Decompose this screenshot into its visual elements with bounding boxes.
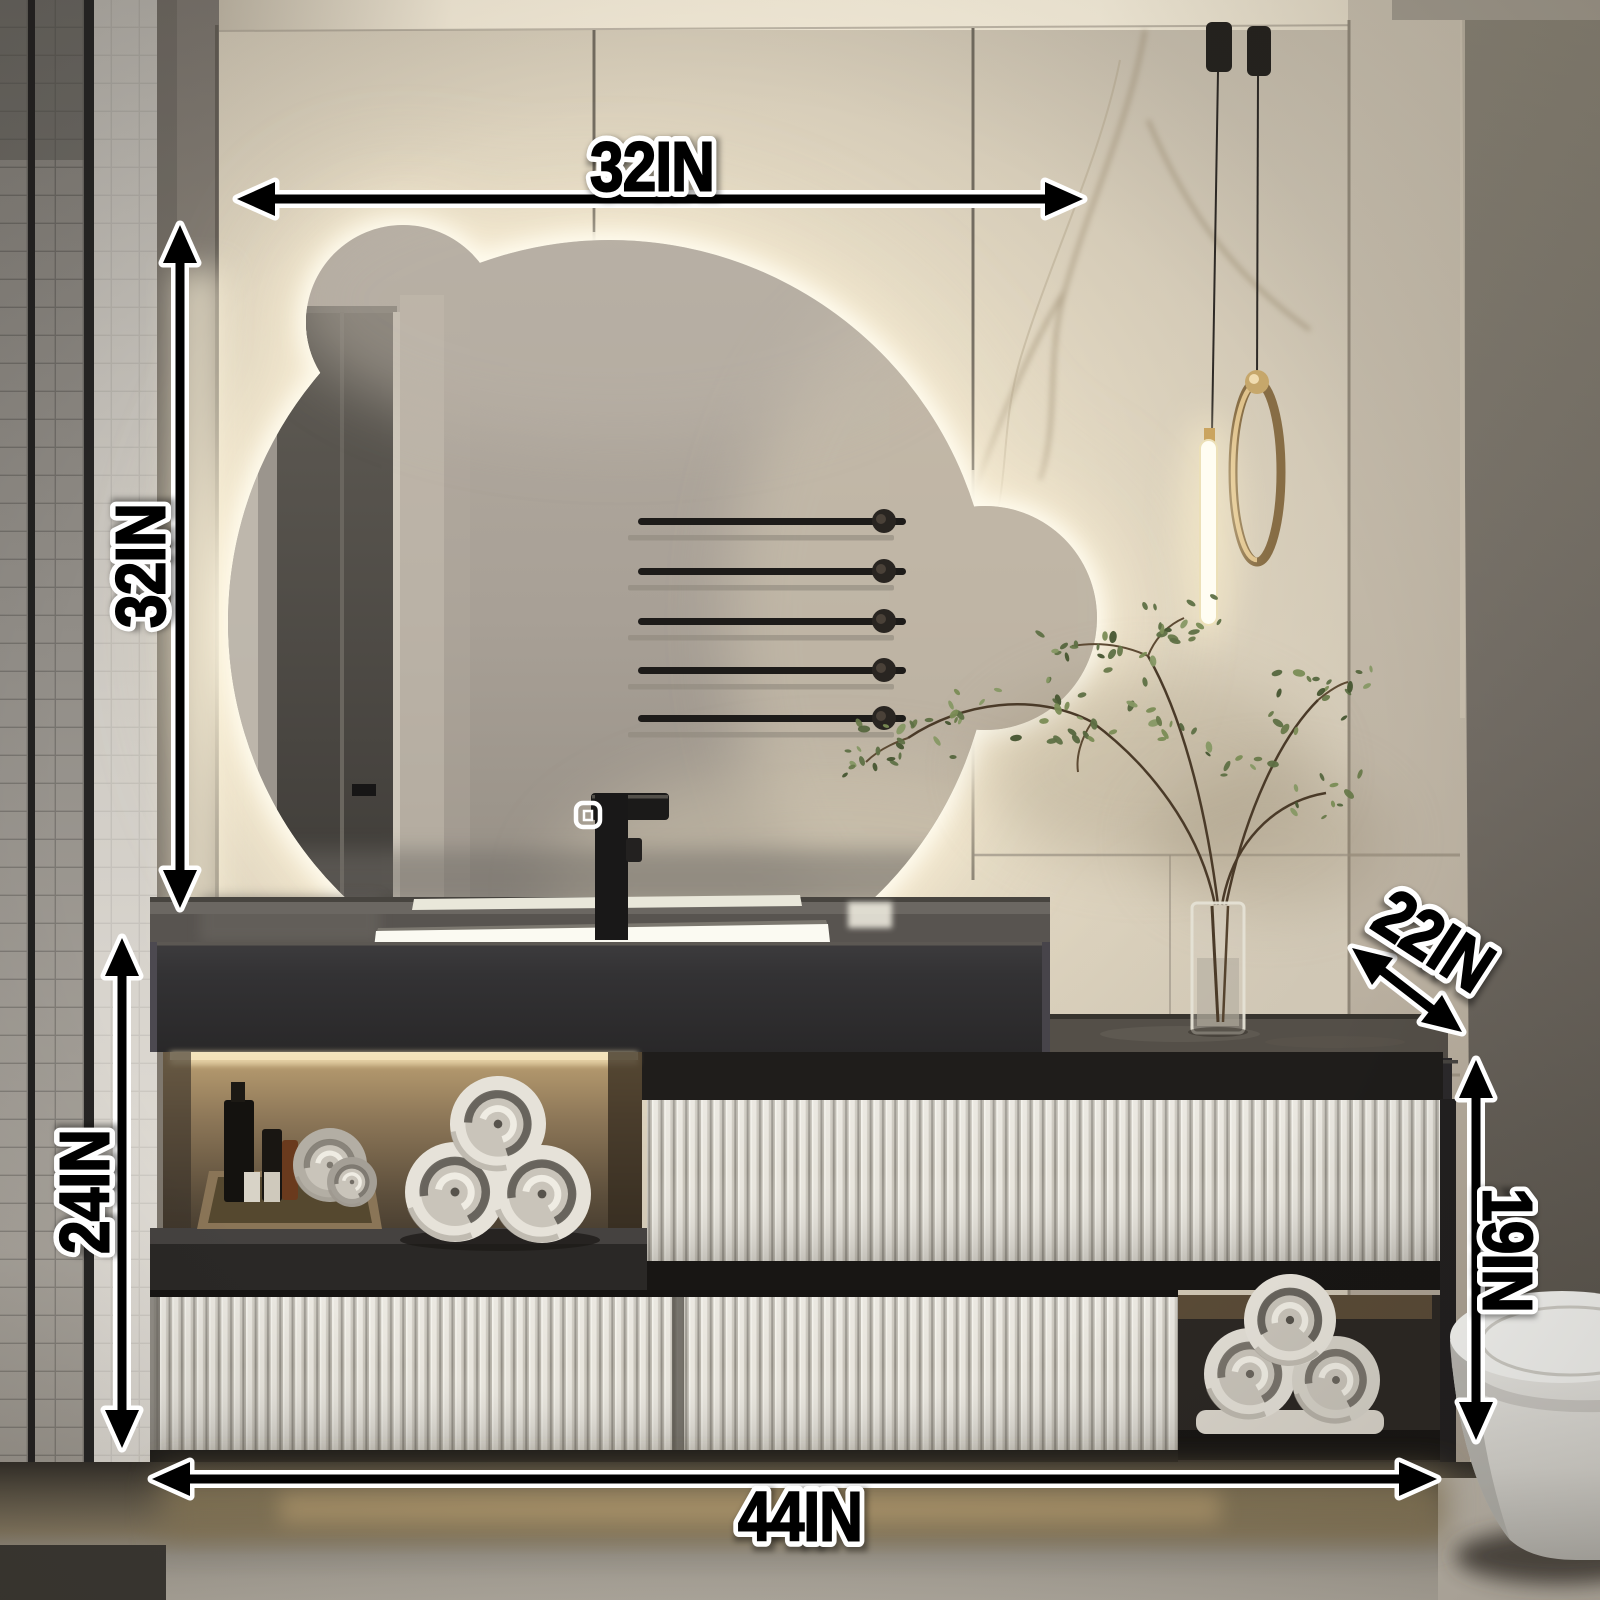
svg-text:32IN: 32IN	[102, 504, 180, 628]
svg-text:32IN: 32IN	[590, 128, 714, 206]
svg-text:44IN: 44IN	[738, 1478, 862, 1556]
svg-text:24IN: 24IN	[46, 1130, 124, 1254]
svg-text:19IN: 19IN	[1469, 1188, 1547, 1312]
